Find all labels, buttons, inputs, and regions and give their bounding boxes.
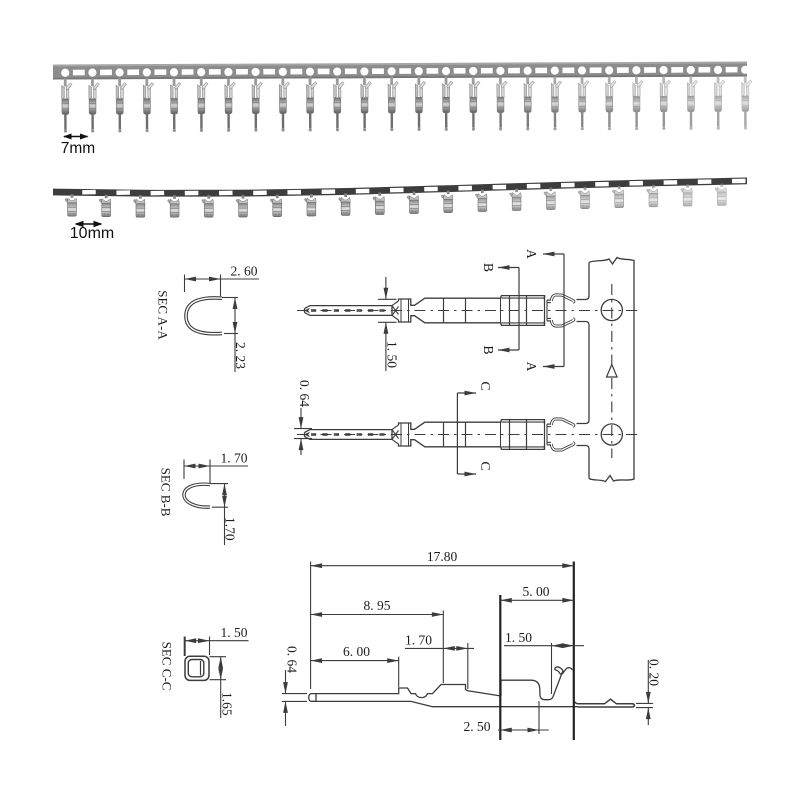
svg-text:0. 64: 0. 64 [285, 646, 300, 673]
svg-text:SEC C-C: SEC C-C [160, 642, 175, 691]
svg-text:A: A [524, 362, 539, 372]
svg-text:1. 70: 1. 70 [405, 633, 432, 648]
svg-text:1. 50: 1. 50 [221, 625, 248, 640]
svg-text:C: C [478, 461, 493, 470]
svg-text:1. 50: 1. 50 [505, 630, 532, 645]
svg-text:5. 00: 5. 00 [523, 584, 550, 599]
svg-text:B: B [481, 345, 496, 354]
svg-text:C: C [478, 381, 493, 390]
svg-text:0. 20: 0. 20 [647, 659, 662, 686]
svg-text:B: B [481, 263, 496, 272]
svg-text:1.65: 1.65 [220, 692, 235, 716]
svg-text:A: A [524, 249, 539, 259]
svg-text:2. 60: 2. 60 [231, 264, 258, 279]
svg-text:1.70: 1.70 [223, 517, 238, 541]
svg-text:2. 23: 2. 23 [233, 342, 248, 369]
svg-text:8. 95: 8. 95 [364, 598, 391, 613]
svg-text:6. 00: 6. 00 [343, 644, 370, 659]
svg-text:7mm: 7mm [61, 140, 95, 157]
svg-text:SEC B-B: SEC B-B [159, 468, 174, 517]
svg-text:2. 50: 2. 50 [464, 719, 491, 734]
svg-text:1. 70: 1. 70 [221, 451, 248, 466]
svg-text:1. 50: 1. 50 [385, 341, 400, 368]
svg-text:10mm: 10mm [70, 225, 114, 242]
svg-text:SEC A-A: SEC A-A [156, 290, 171, 340]
svg-text:0. 64: 0. 64 [297, 380, 312, 407]
svg-text:17.80: 17.80 [427, 549, 458, 564]
